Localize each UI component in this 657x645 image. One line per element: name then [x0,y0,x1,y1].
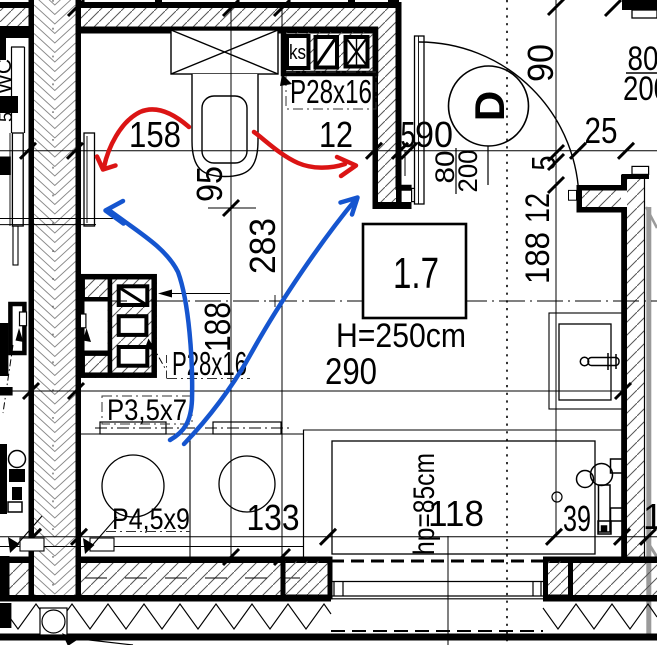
svg-text:H=250cm: H=250cm [336,317,466,355]
svg-text:158: 158 [129,114,181,155]
svg-text:D: D [466,91,513,121]
svg-text:90: 90 [520,44,561,82]
svg-text:5: 5 [401,114,416,155]
svg-text:290: 290 [325,351,377,392]
svg-text:200: 200 [623,70,657,108]
svg-text:12: 12 [519,193,557,223]
svg-text:1.7: 1.7 [393,249,439,298]
svg-text:ks: ks [289,42,306,64]
svg-text:WC: WC [0,59,16,94]
svg-text:25: 25 [585,110,618,151]
svg-text:39: 39 [563,498,591,539]
svg-text:188: 188 [519,232,557,284]
svg-text:hp=85cm: hp=85cm [408,453,441,555]
svg-text:5: 5 [0,112,16,122]
svg-text:133: 133 [247,497,300,538]
svg-text:95: 95 [189,166,230,202]
svg-text:12: 12 [319,114,353,155]
svg-text:283: 283 [242,218,283,274]
svg-text:200: 200 [453,150,483,193]
svg-text:P3,5x7: P3,5x7 [107,394,187,427]
svg-text:1: 1 [643,496,657,537]
svg-text:P28x16: P28x16 [290,73,372,110]
svg-text:90: 90 [415,114,453,155]
svg-text:5: 5 [525,156,562,171]
